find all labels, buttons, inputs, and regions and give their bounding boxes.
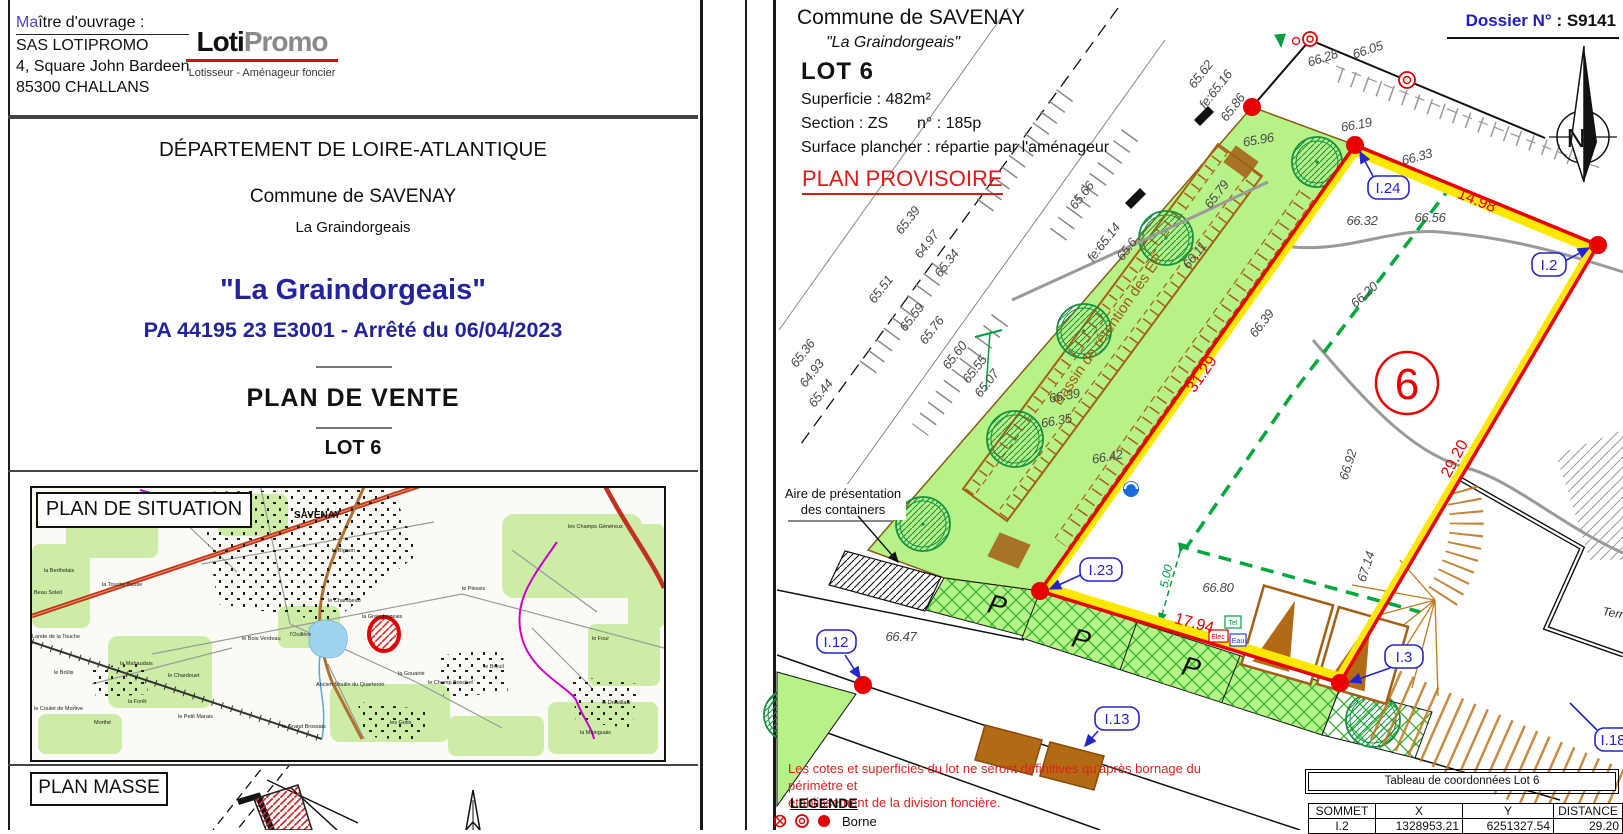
col-distance: DISTANCE (1554, 804, 1623, 819)
dossier-number: Dossier N° : S9141 (1446, 11, 1616, 31)
map-label: l'Ouillère (290, 632, 311, 638)
title-lot: LOT 6 (8, 437, 698, 460)
dimension-label: 14.98 (1455, 185, 1499, 216)
map-label: le Chambeau (328, 598, 361, 604)
map-label: les Gotis (390, 720, 412, 726)
eau-box-label: Eau (1232, 638, 1245, 645)
map-label: le Chardouet (168, 673, 200, 679)
elevation-label: 65.34 (931, 246, 962, 280)
cell-sommet: I.2 (1309, 819, 1376, 834)
plan-status: PLAN PROVISOIRE (802, 166, 1003, 195)
map-label: la Forêt (128, 699, 147, 705)
vertex-label-i12: I.12 (823, 634, 848, 651)
title-place: La Graindorgeais (8, 219, 698, 236)
header-divider (8, 115, 698, 119)
col-y: Y (1463, 804, 1554, 819)
title-doc-type: PLAN DE VENTE (8, 384, 698, 413)
plan-place: "La Graindorgeais" (826, 34, 960, 52)
map-label: le Petit Marais (178, 714, 213, 720)
elevation-label: 66.28 (1306, 45, 1341, 69)
situation-map-canvas: SAVENAY le Bignon la Touche Basse la Gra… (32, 488, 664, 760)
owner-label-prefix: Ma (16, 14, 38, 31)
borne-marker (1346, 136, 1364, 154)
map-label: le Plessis (462, 586, 485, 592)
terrain-text-partial: Terr (1601, 604, 1623, 622)
borne-cross-icon (775, 816, 786, 827)
elevation-label: 66.33 (1400, 145, 1435, 168)
compass-n: N (1567, 123, 1586, 153)
borne-marker (1589, 236, 1607, 254)
section-divider (8, 470, 698, 472)
map-label-savenay: SAVENAY (294, 510, 341, 521)
plan-de-vente-document: { "colors": {"navy":"#2323a0","note_red"… (0, 0, 1623, 830)
containers-label-line2: des containers (801, 502, 886, 517)
lot-number: 6 (1395, 360, 1419, 409)
title-commune: Commune de SAVENAY (8, 186, 698, 208)
map-label: la Mahaudais (120, 661, 153, 667)
plan-section: Section : ZS (801, 115, 888, 133)
borne-marker (1031, 582, 1049, 600)
vertex-label-i3: I.3 (1396, 649, 1413, 666)
map-label: le Bignon (332, 548, 355, 554)
map-label: la Graindorgeais (362, 614, 403, 620)
plan-parcel-number: n° : 185p (917, 115, 981, 133)
elevation-label: 65.66 (1066, 178, 1098, 213)
elevation-label: 65.51 (865, 272, 896, 306)
map-label: le Coulet de Mortive (34, 706, 83, 712)
footnote-line1: Les cotes et superficies du lot ne seron… (788, 760, 1218, 794)
coord-table-row: I.2 1328953.21 6251327.54 29.20 (1309, 819, 1623, 834)
separator-rule-2 (316, 427, 392, 429)
owner-label-rest: ître d'ouvrage : (38, 14, 144, 31)
elevation-label: 66.80 (1202, 580, 1234, 595)
water-symbol-icon (1123, 481, 1139, 497)
plan-commune: Commune de SAVENAY (797, 6, 1025, 30)
plan-area: Superficie : 482m² (801, 91, 931, 109)
map-label: le Breuil (484, 664, 504, 670)
tel-box-label: Tel (1229, 620, 1238, 627)
elec-box-label: Elec (1211, 634, 1225, 641)
cell-x: 1328953.21 (1376, 819, 1463, 834)
masse-title: PLAN MASSE (30, 772, 168, 806)
owner-block: Maître d'ouvrage : SAS LOTIPROMO 4, Squa… (16, 12, 189, 98)
legend-borne-symbols (772, 813, 836, 829)
map-label: Lande de la Touche (32, 634, 80, 640)
logo-red-rule (186, 59, 338, 62)
masse-hatched-lot (254, 785, 312, 830)
elevation-label: 65.76 (916, 313, 948, 348)
elevation-label: 66.56 (1414, 210, 1446, 225)
vertex-label-i2: I.2 (1541, 257, 1558, 274)
borne-filled-icon (818, 815, 830, 827)
north-compass-icon: N (1549, 46, 1617, 182)
map-label: Morthé (94, 720, 111, 726)
cell-y: 6251327.54 (1463, 819, 1554, 834)
elevation-label: 66.32 (1346, 213, 1378, 228)
map-label: le Grand Brossais (282, 724, 326, 730)
map-label: le Brûlis (54, 670, 74, 676)
map-label: Beau Soleil (34, 590, 62, 596)
borne-marker (1331, 674, 1349, 692)
elevation-label: 66.39 (1246, 306, 1277, 340)
dossier-value: : S9141 (1552, 11, 1616, 30)
title-project: "La Graindorgeais" (8, 274, 698, 307)
elevation-label: 66.47 (885, 629, 917, 644)
col-x: X (1376, 804, 1463, 819)
site-marker (369, 617, 399, 651)
logo-subtitle: Lotisseur - Aménageur foncier (182, 67, 342, 79)
elevation-label: 67.14 (1354, 549, 1378, 583)
dossier-label: Dossier N° (1466, 11, 1552, 30)
masse-plan (200, 766, 700, 830)
masse-north-arrow-icon (466, 790, 480, 830)
cell-distance: 29.20 (1554, 819, 1623, 834)
borne-marker (854, 676, 872, 694)
vertex-label-i24: I.24 (1375, 180, 1400, 197)
vertex-label-i18: I.18 (1600, 732, 1623, 749)
vertex-label-i23: I.23 (1088, 562, 1113, 579)
owner-name: SAS LOTIPROMO (16, 35, 189, 56)
map-label: la Berthelais (44, 568, 75, 574)
map-label: Ancien Moulin du Quarteron (316, 682, 384, 688)
situation-title: PLAN DE SITUATION (36, 492, 252, 528)
map-label: le Champ Boschet (428, 680, 473, 686)
coord-table-title: Tableau de coordonnées Lot 6 (1308, 772, 1616, 791)
logo-part1: Loti (197, 26, 244, 57)
map-label: le Four (592, 636, 609, 642)
legend-title: LEGENDE (790, 795, 858, 811)
elevation-label: 66.20 (1347, 278, 1381, 311)
tree-icon (987, 411, 1043, 467)
containers-label: Aire de présentation des containers (780, 484, 906, 562)
elevation-label: 66.19 (1340, 114, 1373, 134)
elevation-label: 66.05 (1351, 37, 1386, 61)
coord-table: SOMMET X Y DISTANCE I.2 1328953.21 62513… (1308, 803, 1623, 834)
map-label: la Gouairie (398, 671, 425, 677)
logo-wordmark: LotiPromo (182, 26, 342, 58)
title-department: DÉPARTEMENT DE LOIRE-ATLANTIQUE (8, 138, 698, 162)
coord-table-header: SOMMET X Y DISTANCE (1309, 804, 1623, 819)
map-label: les Champs Généreux (568, 524, 623, 530)
logo-part2: Promo (244, 26, 328, 57)
owner-address1: 4, Square John Bardeen (16, 56, 189, 77)
map-label: le Bois Verdeau (242, 636, 281, 642)
dimension-label-green: 5.00 (1157, 563, 1176, 589)
containers-label-line1: Aire de présentation (785, 486, 901, 501)
legend-borne-label: Borne (842, 814, 877, 829)
lotipromo-logo: LotiPromo Lotisseur - Aménageur foncier (182, 26, 342, 79)
vertex-label-i13: I.13 (1104, 711, 1129, 728)
plan-lot-title: LOT 6 (801, 58, 874, 86)
dossier-underline (1447, 37, 1619, 39)
map-label: la Mainguais (580, 730, 611, 736)
owner-label: Maître d'ouvrage : (16, 12, 189, 35)
separator-rule (316, 366, 392, 368)
plan-floor-area: Surface plancher : répartie par l'aménag… (801, 139, 1109, 157)
map-label: la Touche Basse (102, 582, 142, 588)
col-sommet: SOMMET (1309, 804, 1376, 819)
map-label: le Drouillais (602, 700, 631, 706)
title-permit: PA 44195 23 E3001 - Arrêté du 06/04/2023 (8, 318, 698, 343)
fold-line (745, 0, 747, 830)
elevation-label: 66.92 (1336, 447, 1360, 482)
borne-double-circle-icon (796, 815, 808, 827)
lot-number-badge: 6 (1376, 352, 1438, 414)
elevation-label: 65.39 (892, 203, 923, 237)
owner-address2: 85300 CHALLANS (16, 77, 189, 98)
